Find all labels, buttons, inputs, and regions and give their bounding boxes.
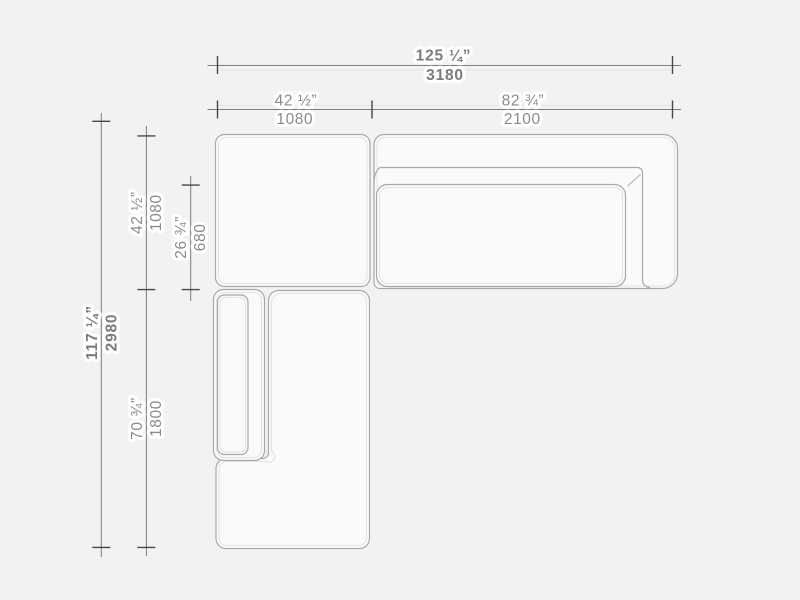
svg-text:2100: 2100 bbox=[504, 111, 541, 128]
svg-text:1080: 1080 bbox=[276, 111, 313, 128]
svg-text:1080: 1080 bbox=[148, 194, 165, 231]
svg-text:42 ½”: 42 ½” bbox=[275, 92, 318, 109]
svg-text:680: 680 bbox=[192, 224, 209, 252]
svg-text:125 ¼”: 125 ¼” bbox=[416, 48, 472, 65]
svg-text:3180: 3180 bbox=[426, 67, 464, 84]
svg-text:117 ¼”: 117 ¼” bbox=[84, 305, 101, 360]
svg-text:82 ¾”: 82 ¾” bbox=[502, 92, 545, 109]
svg-text:26 ¾”: 26 ¾” bbox=[173, 216, 190, 259]
svg-text:2980: 2980 bbox=[103, 314, 120, 352]
svg-text:70 ¾”: 70 ¾” bbox=[129, 397, 146, 440]
svg-text:42 ½”: 42 ½” bbox=[129, 191, 146, 234]
svg-text:1800: 1800 bbox=[148, 400, 165, 437]
